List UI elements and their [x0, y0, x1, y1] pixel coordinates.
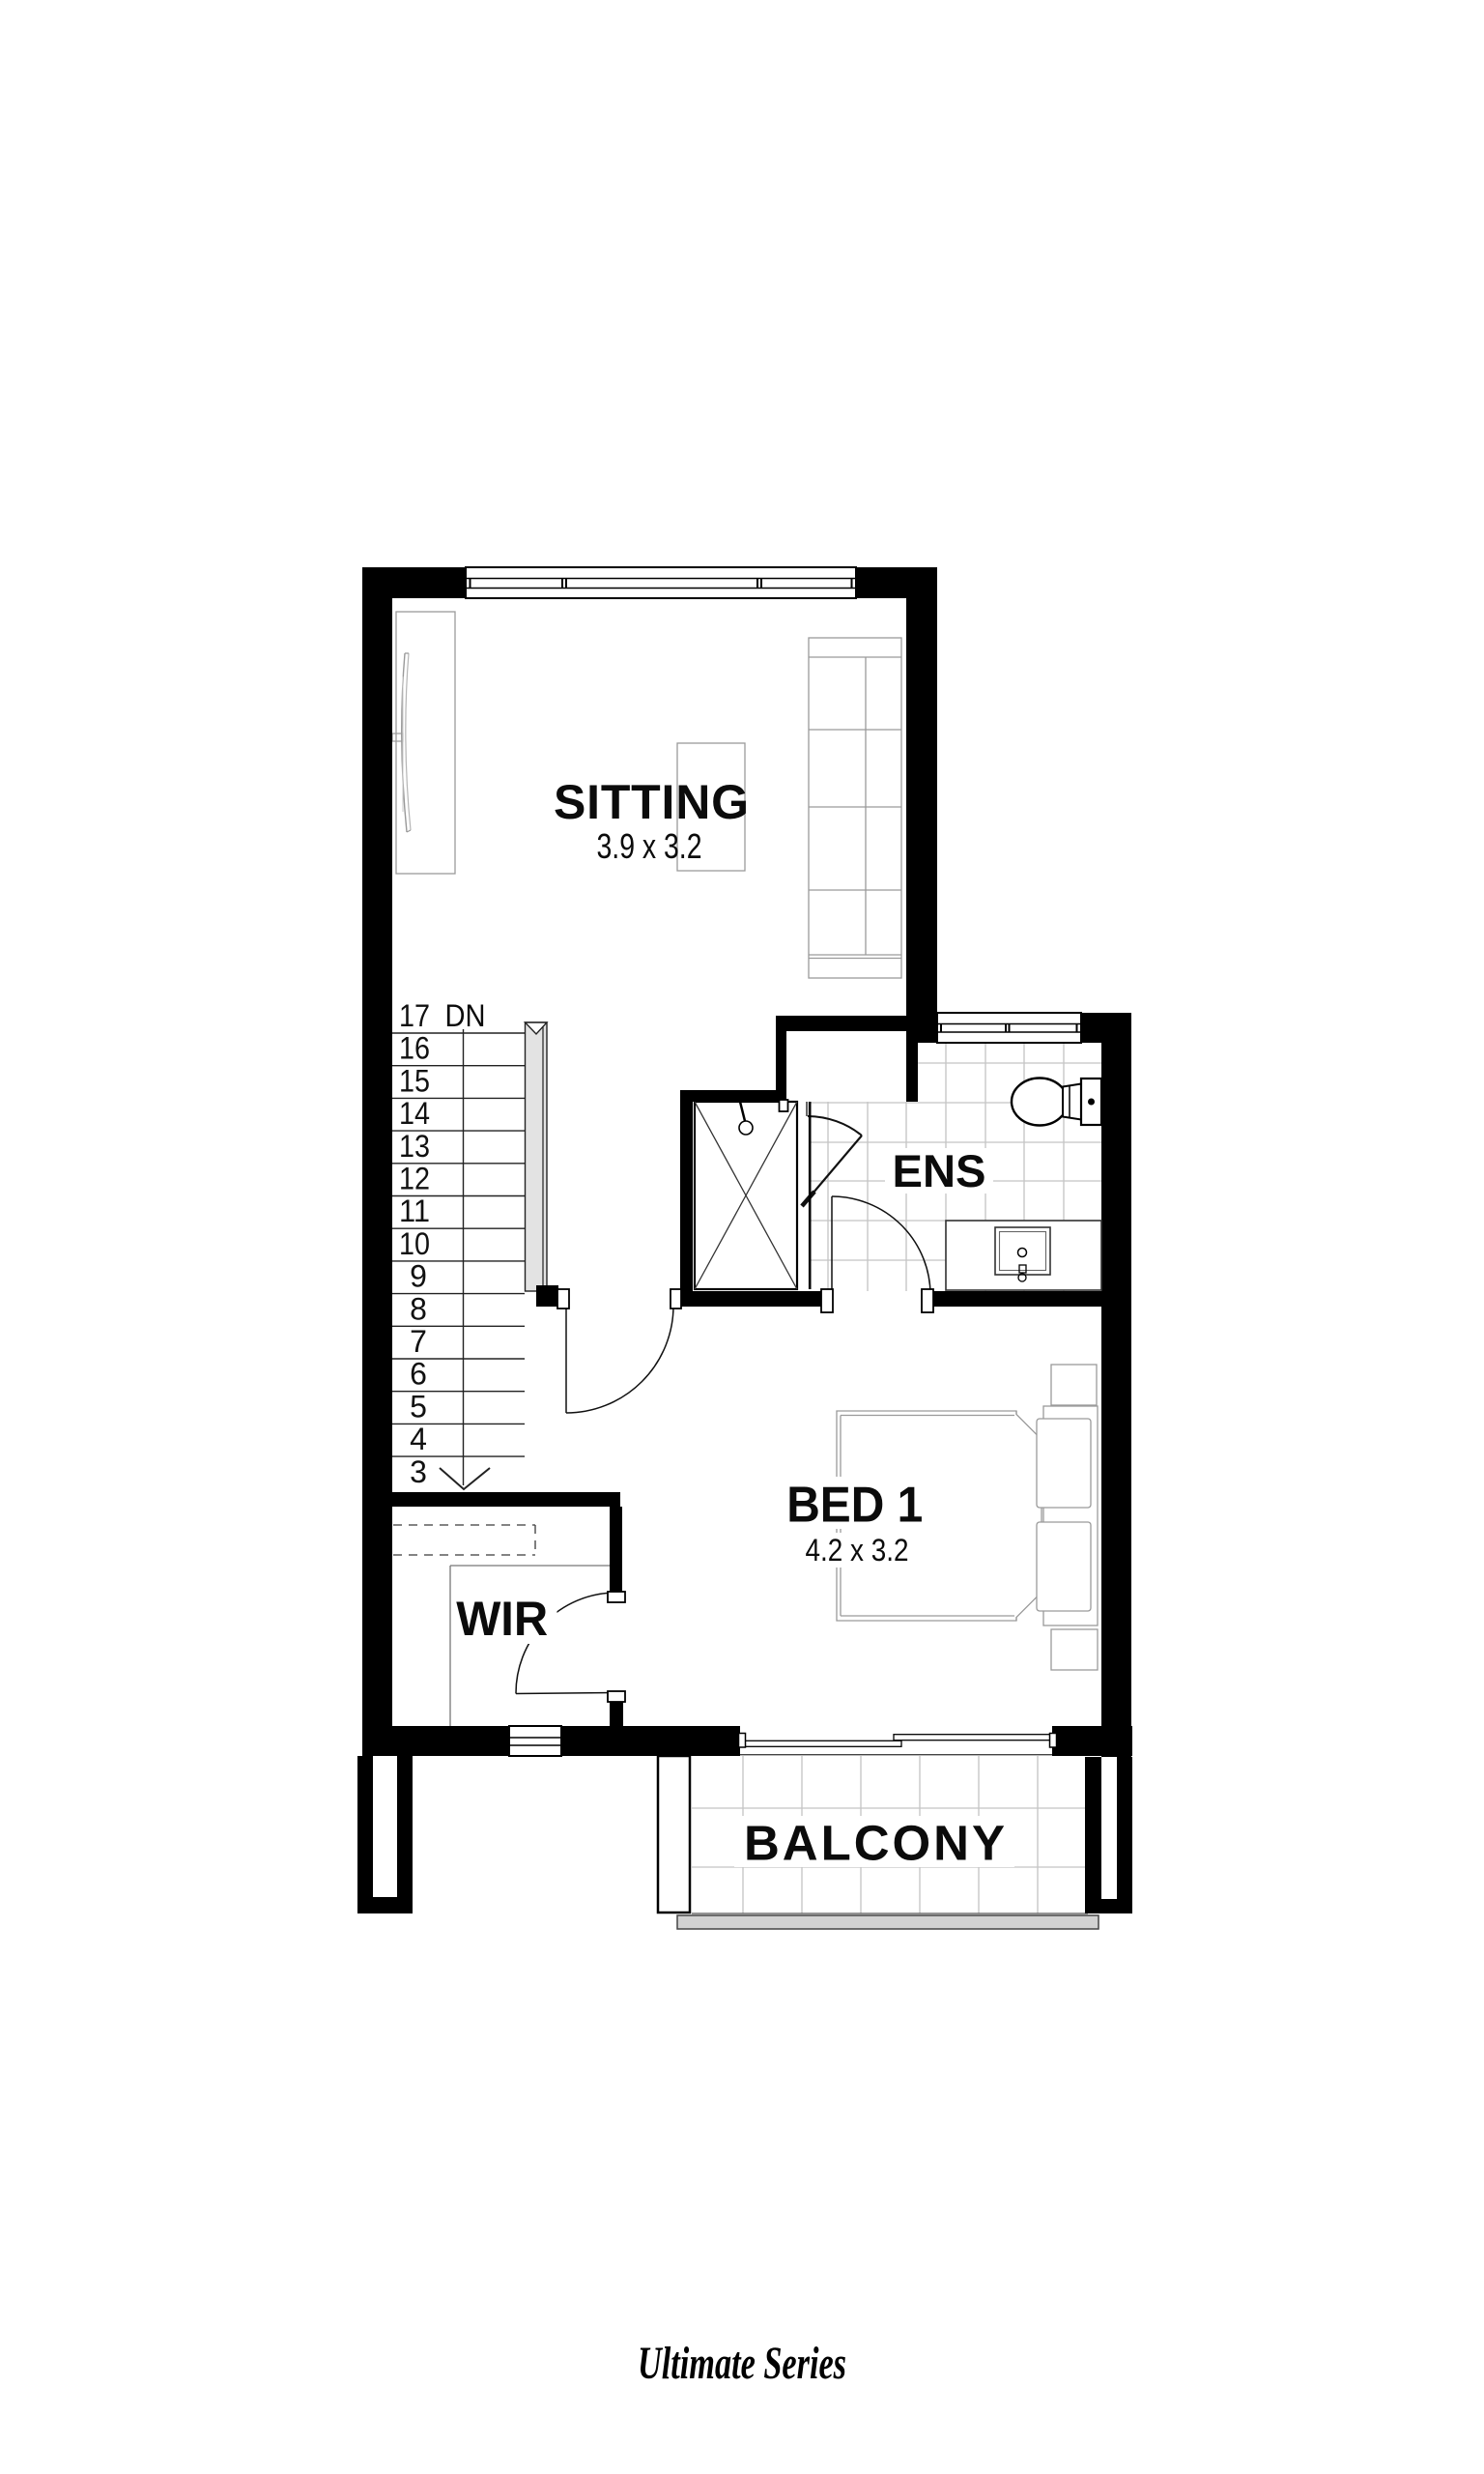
- svg-text:ENS: ENS: [893, 1145, 986, 1196]
- svg-text:12: 12: [399, 1162, 430, 1196]
- svg-text:15: 15: [399, 1063, 430, 1098]
- svg-text:4.2 x 3.2: 4.2 x 3.2: [806, 1533, 909, 1568]
- svg-text:16: 16: [399, 1031, 430, 1066]
- svg-text:3.9 x 3.2: 3.9 x 3.2: [597, 826, 702, 866]
- svg-text:11: 11: [399, 1194, 430, 1228]
- svg-text:Ultimate Series: Ultimate Series: [638, 2338, 846, 2389]
- svg-text:DN: DN: [445, 998, 486, 1033]
- svg-text:3: 3: [410, 1454, 427, 1489]
- svg-text:10: 10: [399, 1226, 430, 1261]
- svg-text:WIR: WIR: [456, 1592, 548, 1646]
- svg-text:8: 8: [410, 1291, 427, 1326]
- svg-text:17: 17: [399, 998, 430, 1033]
- svg-text:7: 7: [410, 1324, 427, 1359]
- svg-text:14: 14: [399, 1096, 430, 1131]
- svg-text:4: 4: [410, 1422, 427, 1456]
- svg-text:13: 13: [399, 1129, 430, 1164]
- svg-text:5: 5: [410, 1389, 427, 1424]
- svg-text:BALCONY: BALCONY: [744, 1816, 1005, 1871]
- svg-text:BED 1: BED 1: [786, 1478, 923, 1534]
- svg-text:SITTING: SITTING: [554, 775, 749, 829]
- svg-text:9: 9: [410, 1259, 427, 1294]
- svg-text:6: 6: [410, 1357, 427, 1392]
